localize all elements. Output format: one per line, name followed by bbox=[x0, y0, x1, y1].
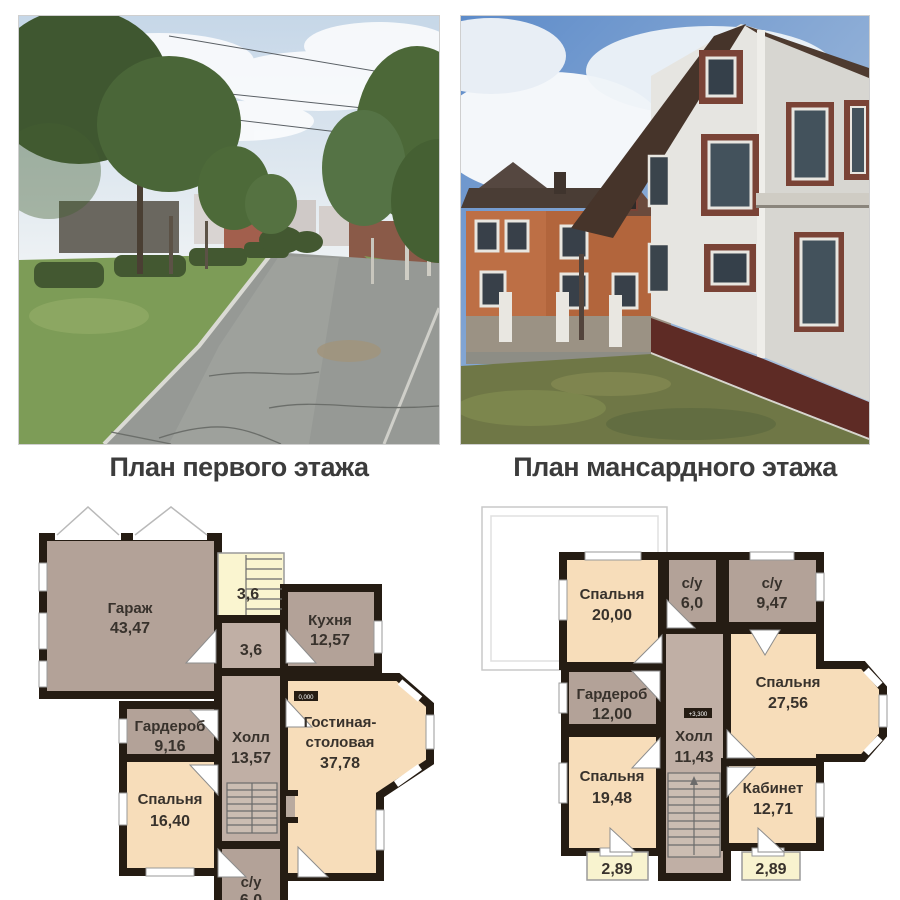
svg-text:20,00: 20,00 bbox=[592, 607, 632, 624]
houses-photo bbox=[460, 15, 870, 445]
label-balcony-right: 2,89 bbox=[755, 861, 786, 878]
attic-floor-plan: +3,300 Спальня 20,00 с/у 6,0 с/у 9,47 Сп… bbox=[450, 495, 900, 900]
label-bedroom: Спальня bbox=[138, 791, 203, 808]
chimney bbox=[554, 172, 566, 194]
svg-text:19,48: 19,48 bbox=[592, 790, 632, 807]
svg-text:9,47: 9,47 bbox=[756, 595, 787, 612]
label-bedroom1: Спальня bbox=[580, 586, 645, 603]
street-photo-scene bbox=[19, 16, 439, 444]
label-study: Кабинет bbox=[743, 780, 804, 797]
svg-text:6,0: 6,0 bbox=[681, 595, 703, 612]
svg-text:столовая: столовая bbox=[306, 734, 375, 751]
real-estate-collage: План первого этажа План мансардного этаж… bbox=[0, 0, 900, 900]
label-garage: Гараж bbox=[108, 600, 153, 617]
label-bedroom3: Спальня bbox=[580, 768, 645, 785]
street-photo bbox=[18, 15, 440, 445]
first-floor-title: План первого этажа bbox=[14, 452, 464, 483]
svg-text:11,43: 11,43 bbox=[674, 749, 713, 766]
label-wc1: с/у bbox=[682, 575, 704, 592]
side-face bbox=[761, 30, 869, 401]
svg-text:12,00: 12,00 bbox=[592, 706, 632, 723]
road-patch bbox=[317, 340, 381, 362]
svg-text:12,71: 12,71 bbox=[753, 801, 793, 818]
svg-text:6,0: 6,0 bbox=[240, 892, 262, 900]
label-hall: Холл bbox=[232, 729, 270, 746]
houses-photo-scene bbox=[461, 16, 869, 444]
label-corridor: 3,6 bbox=[240, 642, 262, 659]
label-stairs: 3,6 bbox=[237, 586, 259, 603]
svg-text:+3,300: +3,300 bbox=[689, 712, 708, 718]
svg-text:37,78: 37,78 bbox=[320, 755, 360, 772]
hall-stairs bbox=[227, 783, 277, 833]
svg-text:43,47: 43,47 bbox=[110, 620, 150, 637]
label-kitchen: Кухня bbox=[308, 612, 352, 629]
svg-text:27,56: 27,56 bbox=[768, 695, 808, 712]
label-wc2: с/у bbox=[762, 575, 784, 592]
lawn-patch bbox=[29, 298, 149, 334]
label-wc: с/у bbox=[241, 874, 263, 891]
attic-floor-title: План мансардного этажа bbox=[450, 452, 900, 483]
downspout bbox=[579, 254, 584, 340]
svg-text:13,57: 13,57 bbox=[231, 750, 271, 767]
label-hall: Холл bbox=[675, 728, 713, 745]
svg-text:0,000: 0,000 bbox=[298, 695, 314, 701]
svg-text:9,16: 9,16 bbox=[154, 738, 185, 755]
label-balcony-left: 2,89 bbox=[601, 861, 632, 878]
label-bedroom2: Спальня bbox=[756, 674, 821, 691]
level-mark: 0,000 bbox=[294, 691, 318, 701]
stairs bbox=[668, 773, 720, 857]
first-floor-plan: 0,000 Гараж 43,47 3,6 Кухня 12,57 3,6 Га… bbox=[0, 495, 450, 900]
balcony-slab bbox=[756, 193, 869, 206]
svg-text:16,40: 16,40 bbox=[150, 813, 190, 830]
label-wardrobe: Гардероб bbox=[135, 718, 206, 735]
label-living: Гостиная- bbox=[304, 714, 377, 731]
svg-text:12,57: 12,57 bbox=[310, 632, 350, 649]
label-wardrobe: Гардероб bbox=[577, 686, 648, 703]
level-mark: +3,300 bbox=[684, 708, 712, 718]
